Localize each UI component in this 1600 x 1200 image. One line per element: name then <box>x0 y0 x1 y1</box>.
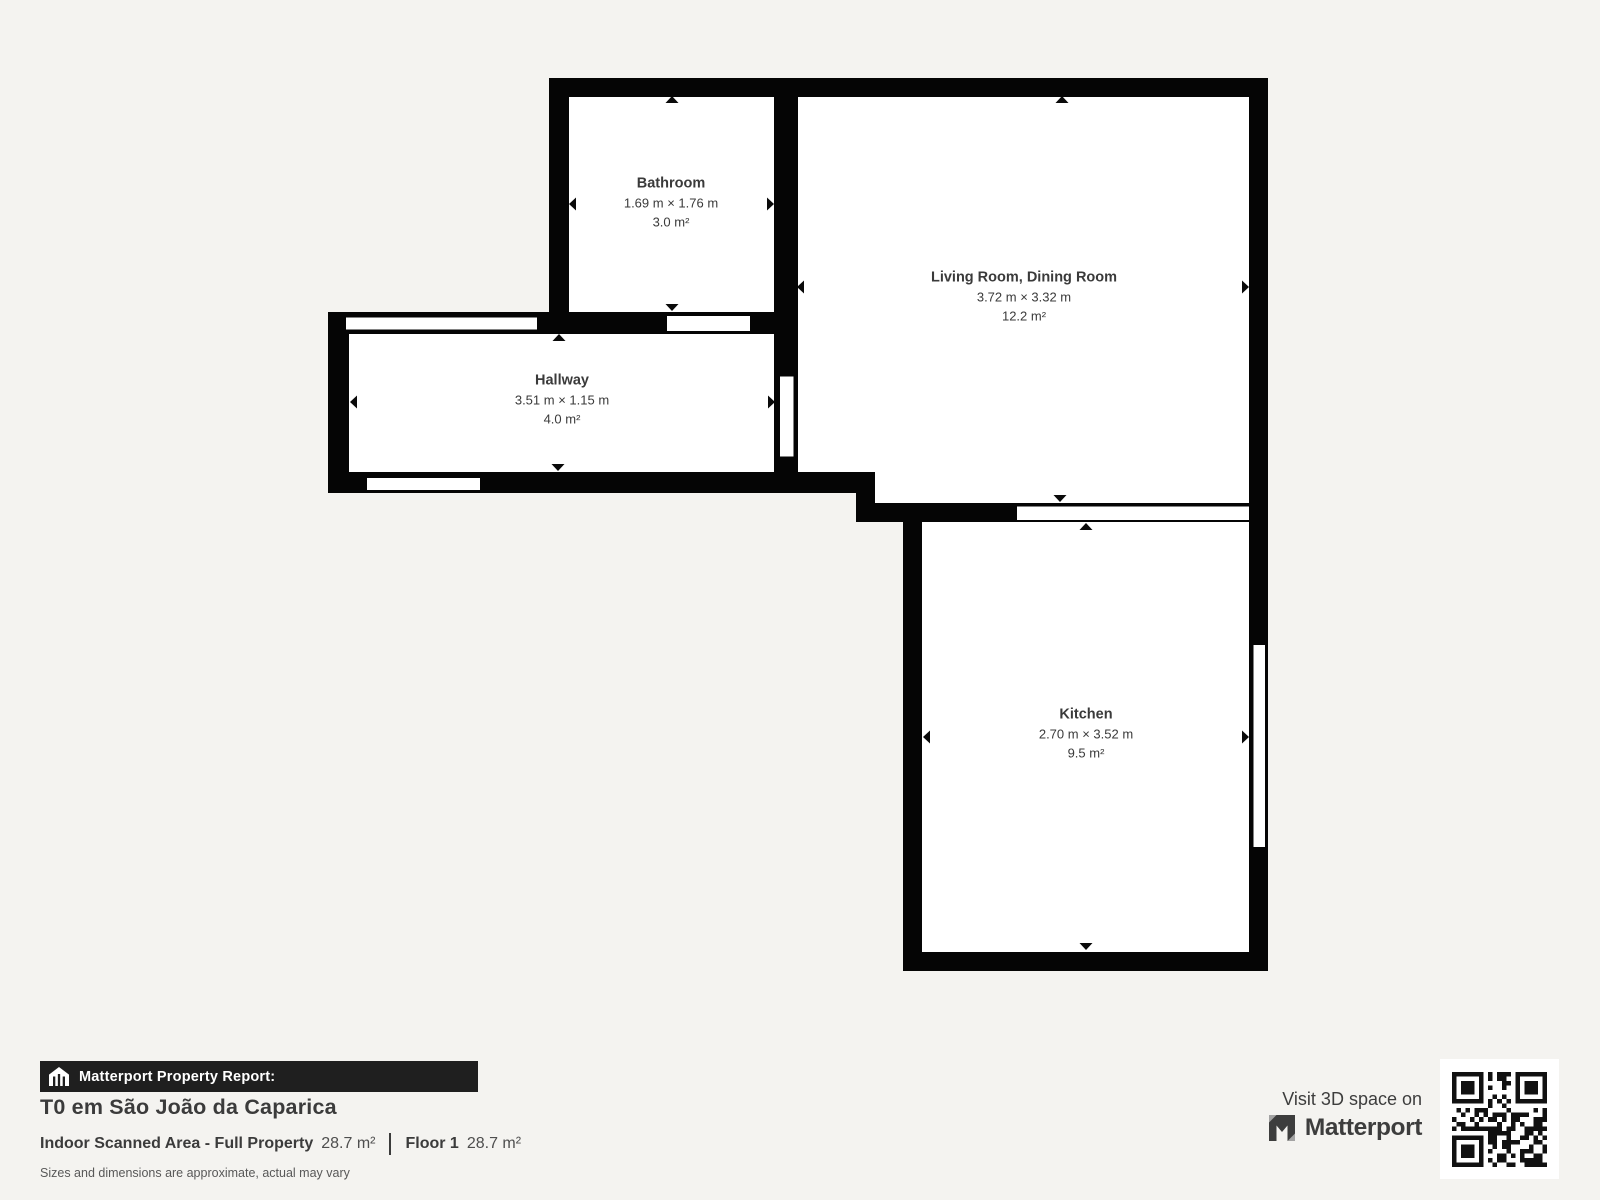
disclaimer-text: Sizes and dimensions are approximate, ac… <box>40 1166 350 1180</box>
matterport-brand: Matterport <box>1267 1113 1422 1143</box>
stats-divider <box>389 1133 391 1155</box>
visit-3d-text: Visit 3D space on <box>1282 1089 1422 1110</box>
room-label-bathroom: Bathroom 1.69 m × 1.76 m 3.0 m² <box>624 175 718 232</box>
wall <box>903 952 1268 971</box>
area-stats: Indoor Scanned Area - Full Property 28.7… <box>40 1133 521 1155</box>
room-area: 12.2 m² <box>931 307 1117 326</box>
floor-label: Floor 1 <box>405 1135 458 1153</box>
window-opening <box>1254 645 1266 847</box>
room-dimensions: 3.51 m × 1.15 m <box>515 391 609 410</box>
room-area: 3.0 m² <box>624 213 718 232</box>
room-dimensions: 3.72 m × 3.32 m <box>931 288 1117 307</box>
wall <box>549 78 569 334</box>
wall <box>903 503 922 971</box>
window-opening <box>346 318 537 330</box>
wall <box>549 78 1268 97</box>
room-name: Living Room, Dining Room <box>931 269 1117 288</box>
wall <box>328 312 349 493</box>
matterport-logo-icon <box>1267 1113 1297 1143</box>
house-icon <box>49 1067 69 1086</box>
report-bar-label: Matterport Property Report: <box>79 1069 275 1085</box>
qr-code-pattern <box>1452 1072 1547 1167</box>
floor-area-value: 28.7 m² <box>467 1135 521 1153</box>
room-area: 4.0 m² <box>515 410 609 429</box>
qr-code <box>1440 1059 1559 1179</box>
door-opening <box>1017 507 1249 521</box>
door-opening <box>667 316 750 331</box>
property-title: T0 em São João da Caparica <box>40 1095 337 1120</box>
room-label-living-room: Living Room, Dining Room 3.72 m × 3.32 m… <box>931 269 1117 326</box>
matterport-property-report-page: Bathroom 1.69 m × 1.76 m 3.0 m² Living R… <box>0 0 1600 1200</box>
door-opening <box>780 377 794 457</box>
matterport-wordmark: Matterport <box>1305 1114 1422 1142</box>
room-name: Kitchen <box>1039 706 1133 725</box>
window-opening <box>367 478 480 490</box>
floor-plan <box>0 0 1600 1200</box>
room-floors <box>349 97 1249 952</box>
room-name: Bathroom <box>624 175 718 194</box>
scanned-area-label: Indoor Scanned Area - Full Property <box>40 1135 313 1153</box>
report-header-bar: Matterport Property Report: <box>40 1061 478 1092</box>
room-label-hallway: Hallway 3.51 m × 1.15 m 4.0 m² <box>515 372 609 429</box>
room-label-kitchen: Kitchen 2.70 m × 3.52 m 9.5 m² <box>1039 706 1133 763</box>
scanned-area-value: 28.7 m² <box>321 1135 375 1153</box>
room-name: Hallway <box>515 372 609 391</box>
room-area: 9.5 m² <box>1039 744 1133 763</box>
room-dimensions: 2.70 m × 3.52 m <box>1039 725 1133 744</box>
matterport-promo: Visit 3D space on Matterport <box>1246 1089 1422 1143</box>
room-dimensions: 1.69 m × 1.76 m <box>624 194 718 213</box>
